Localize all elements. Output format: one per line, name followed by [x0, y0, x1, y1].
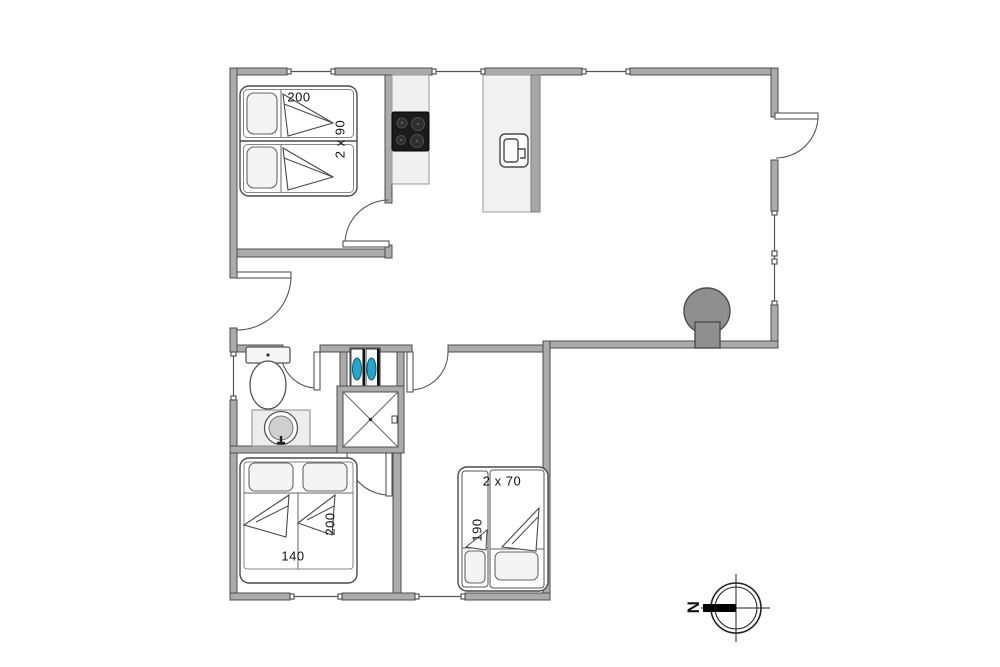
bathroom [246, 347, 404, 453]
floorplan-drawing [0, 0, 1000, 667]
bed-icon [240, 458, 357, 583]
compass-icon [701, 574, 770, 642]
window-icon [290, 594, 342, 599]
floorplan-page: 200 2 x 90 140 200 2 x 70 190 N [0, 0, 1000, 667]
window-icon [287, 69, 335, 74]
washbasin-icon [252, 410, 310, 446]
door-icon [343, 200, 389, 247]
door-icon [407, 352, 448, 392]
kitchen-island-sink-icon [500, 134, 528, 167]
washer-dryer-icon [350, 348, 380, 390]
shower-icon [337, 386, 404, 453]
stove-icon [392, 112, 429, 151]
door-icon [236, 272, 291, 330]
window-icon [772, 211, 777, 305]
door-icon [775, 113, 818, 158]
bed-icon [458, 467, 548, 591]
fireplace-icon [684, 288, 730, 348]
toilet-icon [246, 347, 290, 409]
kitchen-island-edge [531, 75, 540, 212]
window-icon [582, 69, 630, 74]
kitchen [392, 75, 540, 212]
window-icon [231, 352, 236, 400]
window-icon [415, 594, 465, 599]
bed-icon [240, 86, 357, 196]
window-icon [432, 69, 485, 74]
